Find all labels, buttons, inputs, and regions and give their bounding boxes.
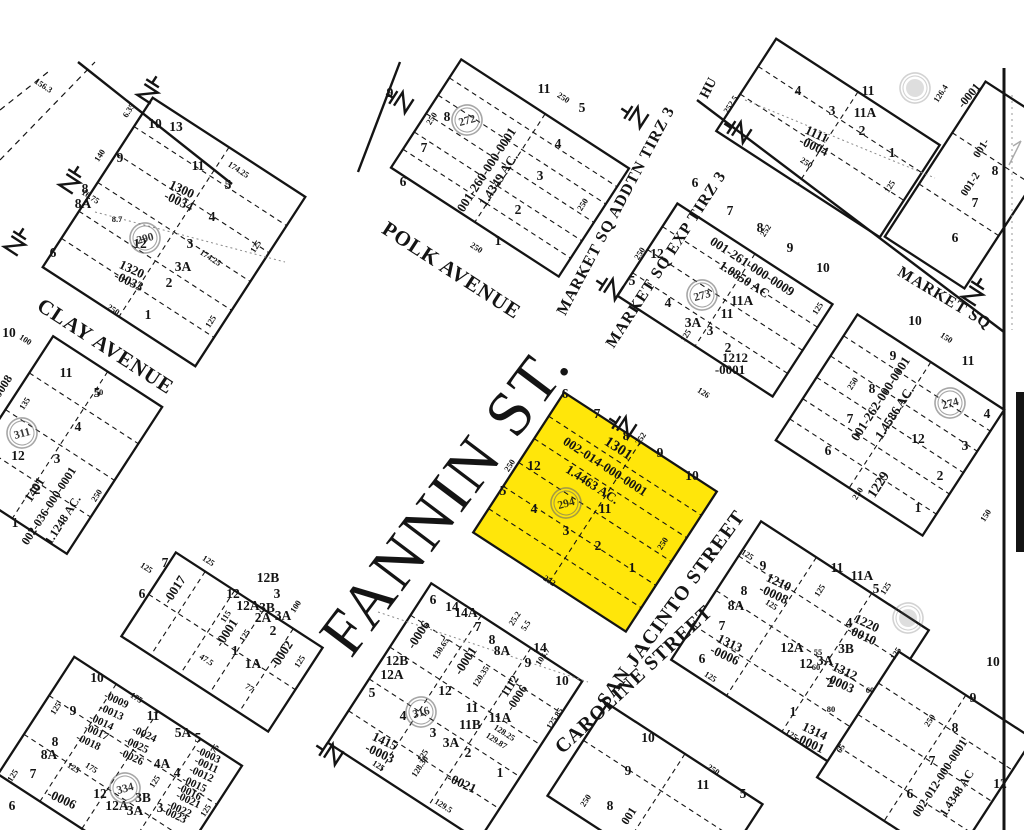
lot-number: 12B	[386, 653, 409, 668]
lot-number: 8	[741, 583, 748, 598]
lot-number: 6	[825, 443, 832, 458]
lot-number: 9	[787, 240, 794, 255]
lot-number: 1	[12, 515, 19, 530]
lot-number: 5	[369, 685, 376, 700]
lot-number: 8	[992, 163, 999, 178]
lot-number: 8A	[494, 643, 511, 658]
lot-number: 11	[721, 306, 734, 321]
lot-number: 1	[145, 307, 152, 322]
lot-number: 5	[740, 786, 747, 801]
lot-number: 9	[760, 558, 767, 573]
lot-number: 7	[475, 619, 482, 634]
lot-number: 12B	[257, 570, 280, 585]
dimension-label: 55	[814, 647, 823, 657]
lot-number: 12	[11, 448, 25, 463]
lot-number: 10	[816, 260, 830, 275]
lot-number: 11	[192, 158, 205, 173]
lot-number: 4	[75, 419, 82, 434]
lot-number: 2	[859, 123, 866, 138]
lot-number: 4A	[154, 756, 171, 771]
lot-number: 9	[970, 690, 977, 705]
lot-number: 10	[641, 730, 655, 745]
lot-number: 9	[657, 445, 664, 460]
lot-number: 11A	[854, 105, 877, 120]
lot-number: 9	[70, 703, 77, 718]
lot-number: 12A	[780, 640, 804, 655]
lot-number: 11	[147, 708, 160, 723]
lot-number: 11	[962, 353, 975, 368]
lot-number: 9	[525, 655, 532, 670]
lot-number: 6	[9, 798, 16, 813]
lot-number: 6	[699, 651, 706, 666]
lot-number: 1	[629, 560, 636, 575]
lot-number: 3	[274, 586, 281, 601]
lot-number: 11	[831, 560, 844, 575]
parcel-label: -0001	[715, 362, 745, 377]
lot-number: 6	[692, 175, 699, 190]
lot-number: 8A	[728, 598, 745, 613]
lot-number: 3	[563, 523, 570, 538]
lot-number: 2	[465, 745, 472, 760]
dimension-label: 80	[827, 704, 836, 714]
lot-number: 4	[984, 406, 991, 421]
lot-number: 3	[962, 438, 969, 453]
lot-number: 8	[444, 109, 451, 124]
lot-number: 12	[993, 776, 1007, 791]
lot-number: 4	[665, 295, 672, 310]
lot-number: 3	[829, 103, 836, 118]
lot-number: 10	[148, 116, 162, 131]
lot-number: 2	[166, 275, 173, 290]
lot-number: 11	[466, 700, 479, 715]
lot-number: 1	[915, 500, 922, 515]
lot-number: 12	[650, 246, 664, 261]
lot-number: 1	[790, 704, 797, 719]
lot-number: 11	[538, 81, 551, 96]
lot-number: 9	[117, 150, 124, 165]
lot-number: 6	[952, 230, 959, 245]
lot-number: 12	[438, 683, 452, 698]
lot-number: 8	[607, 798, 614, 813]
lot-number: 8	[952, 720, 959, 735]
lot-number: 2	[595, 538, 602, 553]
lot-number: 1	[889, 145, 896, 160]
lot-number: 10	[90, 670, 104, 685]
lot-number: 10	[685, 468, 699, 483]
lot-number: 5	[195, 730, 202, 745]
lot-number: 11	[697, 777, 710, 792]
lot-number: 12A	[380, 667, 404, 682]
dimension-label: 50	[95, 387, 104, 397]
lot-number: 5A	[175, 725, 192, 740]
lot-number: 5	[225, 177, 232, 192]
lot-number: 6	[562, 386, 569, 401]
lot-number: 9	[625, 763, 632, 778]
lot-number: 10	[908, 313, 922, 328]
lot-number: 6	[907, 786, 914, 801]
plat-map-canvas[interactable]: FANNIN ST.POLK AVENUECLAY AVENUESAN JACI…	[0, 0, 1024, 830]
lot-number: 3B	[838, 641, 854, 656]
lot-number: 12	[911, 431, 925, 446]
lot-number: 8A	[41, 747, 58, 762]
dimension-label: 60	[812, 662, 821, 672]
lot-number: 7	[847, 411, 854, 426]
lot-number: 4	[795, 83, 802, 98]
lot-number: 1A	[245, 656, 262, 671]
lot-number: 6	[139, 586, 146, 601]
lot-number: 3A	[175, 259, 192, 274]
lot-number: 7	[421, 140, 428, 155]
lot-number: 10	[555, 673, 569, 688]
lot-number: 12	[527, 458, 541, 473]
lot-number: 3A	[127, 803, 144, 818]
lot-number: 1	[232, 643, 239, 658]
lot-number: 7	[30, 766, 37, 781]
lot-number: 3	[430, 725, 437, 740]
lot-number: 4	[531, 501, 538, 516]
lot-number: 11A	[731, 293, 754, 308]
plat-map: FANNIN ST.POLK AVENUECLAY AVENUESAN JACI…	[0, 0, 1024, 830]
lot-number: 3	[54, 451, 61, 466]
lot-number: 1	[495, 233, 502, 248]
lot-number: 3	[187, 236, 194, 251]
map-border-bar	[1016, 392, 1024, 552]
lot-number: 13	[169, 119, 183, 134]
lot-number: 6	[400, 174, 407, 189]
lot-number: 11	[862, 83, 875, 98]
lot-number: 7	[727, 203, 734, 218]
lot-number: 11B	[459, 717, 481, 732]
lot-number: 4	[174, 765, 181, 780]
lot-number: 5	[579, 100, 586, 115]
lot-number: 5	[500, 483, 507, 498]
lot-number: 7	[929, 753, 936, 768]
lot-number: 7	[972, 195, 979, 210]
lot-number: 4	[555, 136, 562, 151]
lot-number: 7	[594, 406, 601, 421]
lot-number: 3	[707, 323, 714, 338]
lot-number: 3A	[443, 735, 460, 750]
lot-number: 5	[629, 273, 636, 288]
lot-number: 11A	[851, 568, 874, 583]
lot-number: 11	[60, 365, 73, 380]
lot-number: 6	[50, 245, 57, 260]
lot-number: 7	[162, 555, 169, 570]
dimension-label: 60	[866, 685, 875, 695]
lot-number: 10	[2, 325, 16, 340]
lot-number: 1	[497, 765, 504, 780]
lot-number: 3A	[685, 315, 702, 330]
lot-number: 2	[270, 623, 277, 638]
lot-number: 6	[430, 592, 437, 607]
lot-number: 4	[209, 209, 216, 224]
lot-number: 14A	[454, 605, 478, 620]
lot-number: 10	[986, 654, 1000, 669]
lot-number: 2	[515, 202, 522, 217]
lot-number: 2	[937, 468, 944, 483]
dimension-label: 8.7	[112, 214, 123, 224]
lot-number: 3	[537, 168, 544, 183]
